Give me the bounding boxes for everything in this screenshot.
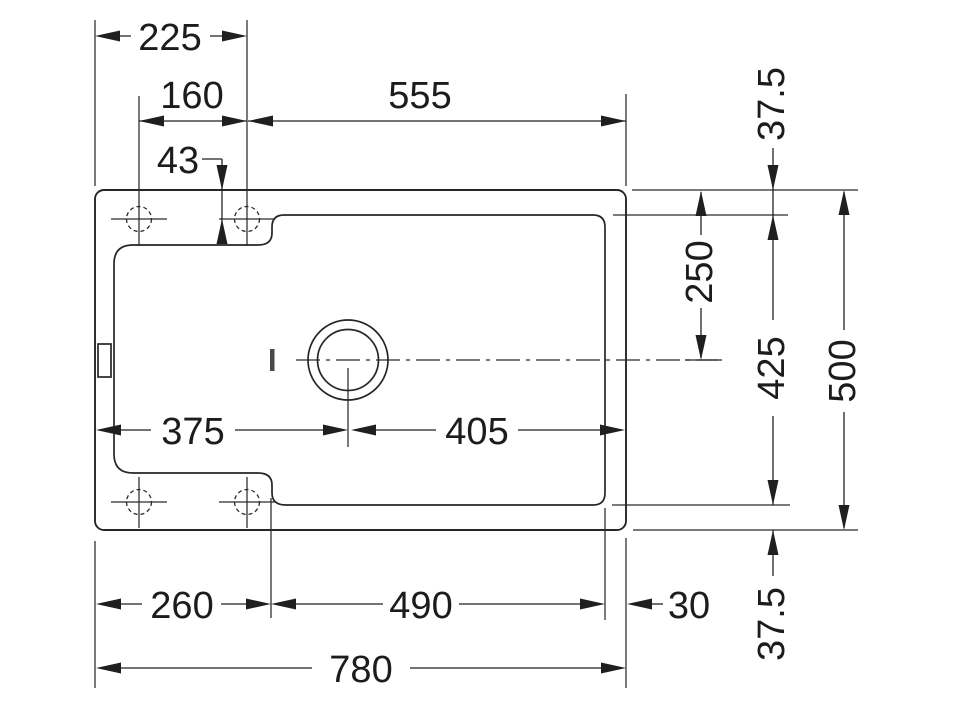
arrow-left-icon (139, 116, 164, 127)
faucet-hole-bottom-left (111, 477, 167, 528)
arrow-down-icon (217, 165, 228, 190)
dim-overall-width: 780 (96, 649, 626, 691)
dim-label-37-5-bottom: 37.5 (751, 587, 793, 661)
arrow-left-icon (96, 663, 121, 674)
arrow-up-icon (768, 530, 779, 555)
arrow-left-icon (248, 116, 273, 127)
dim-label-405: 405 (445, 411, 508, 453)
arrow-right-icon (600, 425, 625, 436)
dim-label-260: 260 (150, 585, 213, 627)
arrow-down-icon (839, 505, 850, 530)
arrow-left-icon (351, 425, 376, 436)
arrow-down-icon (696, 335, 707, 360)
dim-label-37-5-top: 37.5 (751, 67, 793, 141)
dim-bowl-top-width: 555 (248, 75, 626, 127)
dim-label-780: 780 (329, 649, 392, 691)
dim-label-500: 500 (822, 339, 864, 402)
arrow-up-icon (696, 191, 707, 216)
faucet-holes (111, 207, 275, 529)
faucet-hole-bottom-right (219, 477, 275, 528)
dim-label-43: 43 (157, 140, 199, 182)
overflow-slot (98, 344, 111, 377)
dim-tap-hole-spacing: 160 (139, 75, 247, 127)
arrow-left-icon (95, 31, 120, 42)
dim-rim-top: 37.5 (751, 67, 793, 240)
arrow-down-icon (768, 165, 779, 190)
arrow-right-icon (601, 116, 626, 127)
dim-rim-bottom: 37.5 (751, 530, 793, 661)
arrow-up-icon (768, 215, 779, 240)
dim-drain-center-from-top: 250 (679, 191, 722, 360)
arrow-left-icon (271, 599, 296, 610)
dim-tap-hole-offset: 43 (157, 140, 228, 244)
arrow-down-icon (768, 480, 779, 505)
dim-tap-ledge-width: 225 (95, 17, 247, 59)
sink-dimension-drawing: 225 160 555 43 375 405 260 (0, 0, 971, 724)
dim-label-160: 160 (160, 75, 223, 117)
dim-label-225: 225 (138, 17, 201, 59)
arrow-right-icon (580, 599, 605, 610)
dim-right-margin: 30 (627, 585, 710, 627)
dim-left-section-width: 260 (96, 585, 271, 627)
bowl-edge-mark (270, 349, 275, 371)
dim-label-30: 30 (668, 585, 710, 627)
drawing-canvas: 225 160 555 43 375 405 260 (0, 0, 971, 724)
arrow-right-icon (222, 31, 247, 42)
dim-bowl-bottom-width: 490 (271, 585, 605, 627)
arrow-right-icon (323, 425, 348, 436)
dim-label-555: 555 (388, 75, 451, 117)
dim-bowl-height: 425 (751, 215, 793, 505)
arrow-right-icon (601, 663, 626, 674)
dim-label-490: 490 (389, 585, 452, 627)
arrow-right-icon (222, 116, 247, 127)
arrow-left-icon (96, 599, 121, 610)
arrow-left-icon (627, 599, 652, 610)
dim-label-425: 425 (751, 336, 793, 399)
dim-drain-from-right: 405 (351, 411, 625, 453)
dim-label-375: 375 (161, 411, 224, 453)
dim-overall-height: 500 (822, 190, 864, 530)
arrow-up-icon (839, 190, 850, 215)
arrow-left-icon (96, 425, 121, 436)
arrow-right-icon (246, 599, 271, 610)
arrow-up-icon (217, 219, 228, 244)
dim-drain-from-left: 375 (96, 411, 348, 453)
dim-label-250: 250 (679, 240, 721, 303)
